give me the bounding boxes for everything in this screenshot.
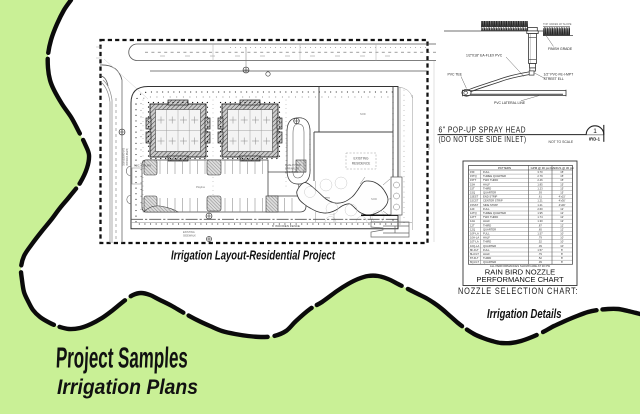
svg-text:12': 12' — [560, 223, 564, 227]
svg-text:IRD-1: IRD-1 — [589, 136, 601, 141]
svg-text:10H-LA: 10H-LA — [470, 236, 479, 240]
svg-text:HALF: HALF — [483, 236, 490, 240]
svg-text:PERFORMANCE CHART: PERFORMANCE CHART — [476, 275, 564, 284]
svg-text:8T-FLT: 8T-FLT — [470, 256, 479, 260]
svg-text:FULL: FULL — [483, 207, 490, 211]
svg-text:12': 12' — [560, 211, 564, 215]
svg-text:1.21: 1.21 — [537, 203, 543, 207]
svg-text:10F-LA: 10F-LA — [470, 232, 479, 236]
svg-text:TWO THIRD: TWO THIRD — [483, 215, 498, 219]
svg-text:QUARTER: QUARTER — [483, 244, 496, 248]
svg-text:.93: .93 — [538, 191, 542, 195]
svg-text:12': 12' — [560, 227, 564, 231]
svg-text:QUARTER: QUARTER — [483, 227, 496, 231]
svg-text:15F: 15F — [470, 170, 475, 174]
svg-text:10T-LA: 10T-LA — [470, 240, 479, 244]
svg-text:1.95: 1.95 — [537, 211, 543, 215]
svg-text:15CST: 15CST — [470, 199, 479, 203]
svg-text:2.60: 2.60 — [537, 207, 543, 211]
svg-text:200 (60' WIDE RIGHT-OF-WAY RD: 200 (60' WIDE RIGHT-OF-WAY RD — [122, 148, 126, 166]
svg-text:QUARTER: QUARTER — [483, 191, 496, 195]
svg-text:END STRIP: END STRIP — [483, 195, 498, 199]
svg-text:10': 10' — [560, 236, 564, 240]
svg-text:FINISH GRADE: FINISH GRADE — [548, 47, 573, 51]
svg-text:1.57: 1.57 — [537, 248, 543, 252]
svg-text:10Q-LA: 10Q-LA — [470, 244, 479, 248]
svg-text:TWO THIRD: TWO THIRD — [483, 178, 498, 182]
svg-text:6' WOODEN FENCE: 6' WOODEN FENCE — [272, 224, 300, 228]
svg-text:EXISTING: EXISTING — [354, 157, 369, 161]
svg-text:15': 15' — [560, 178, 564, 182]
svg-text:SIDE STRIP: SIDE STRIP — [483, 203, 498, 207]
svg-text:(DO NOT USE SIDE INLET): (DO NOT USE SIDE INLET) — [439, 135, 527, 144]
svg-text:RADIUS @ 30 psi: RADIUS @ 30 psi — [550, 166, 574, 170]
svg-text:10': 10' — [560, 244, 564, 248]
svg-text:HALF: HALF — [483, 182, 490, 186]
svg-text:Irrigation Plans: Irrigation Plans — [57, 376, 198, 399]
svg-text:15TQ: 15TQ — [470, 174, 477, 178]
svg-text:THREE QUARTER: THREE QUARTER — [483, 174, 506, 178]
svg-text:GPM @ 30 psi: GPM @ 30 psi — [531, 166, 550, 170]
svg-text:2.46: 2.46 — [537, 178, 543, 182]
svg-text:SOD: SOD — [427, 144, 431, 150]
svg-text:12T: 12T — [470, 223, 475, 227]
svg-text:15': 15' — [560, 186, 564, 190]
svg-text:15Q: 15Q — [470, 191, 475, 195]
svg-text:CENTER STRIP: CENTER STRIP — [483, 199, 503, 203]
svg-text:4'x30': 4'x30' — [559, 199, 566, 203]
svg-text:Project Samples: Project Samples — [55, 342, 188, 374]
svg-text:2.79: 2.79 — [537, 174, 543, 178]
svg-text:PVC TEE: PVC TEE — [448, 73, 463, 77]
svg-text:15': 15' — [560, 170, 564, 174]
svg-text:10': 10' — [560, 240, 564, 244]
svg-text:.52: .52 — [538, 256, 542, 260]
svg-text:NOT TO SCALE: NOT TO SCALE — [549, 140, 574, 144]
svg-text:4'x30': 4'x30' — [559, 203, 566, 207]
svg-text:6" POP-UP SPRAY HEAD: 6" POP-UP SPRAY HEAD — [439, 126, 527, 135]
svg-text:RESIDENCE: RESIDENCE — [352, 162, 371, 166]
svg-text:15T: 15T — [470, 186, 475, 190]
svg-text:8F-FLT: 8F-FLT — [470, 248, 479, 252]
svg-text:1.85: 1.85 — [537, 182, 543, 186]
svg-text:12TQ: 12TQ — [470, 211, 477, 215]
svg-text:THREE QUARTER: THREE QUARTER — [483, 211, 506, 215]
svg-text:.79: .79 — [538, 236, 542, 240]
svg-text:HALF: HALF — [483, 219, 490, 223]
svg-text:SIDEWALK: SIDEWALK — [183, 235, 196, 238]
svg-text:.65: .65 — [538, 227, 542, 231]
svg-text:FULL: FULL — [483, 232, 490, 236]
svg-text:THIRD: THIRD — [483, 186, 491, 190]
svg-text:12Q: 12Q — [470, 227, 475, 231]
svg-text:FULL: FULL — [483, 170, 490, 174]
svg-text:10': 10' — [560, 232, 564, 236]
svg-text:THIRD: THIRD — [483, 256, 491, 260]
svg-text:1: 1 — [593, 128, 597, 135]
svg-text:STREET ELL: STREET ELL — [544, 77, 564, 81]
svg-text:12': 12' — [560, 219, 564, 223]
svg-text:15TT: 15TT — [470, 178, 477, 182]
svg-text:Irrigation Details: Irrigation Details — [487, 306, 562, 321]
svg-text:PATTERN: PATTERN — [498, 166, 511, 170]
svg-text:8Q-FLT: 8Q-FLT — [470, 260, 479, 264]
svg-text:12': 12' — [560, 207, 564, 211]
svg-text:Playline: Playline — [196, 185, 206, 189]
svg-text:TOP VARIES W/ SLOPE: TOP VARIES W/ SLOPE — [543, 22, 572, 26]
svg-text:4'x15': 4'x15' — [559, 195, 566, 199]
svg-text:POC AUBURN: POC AUBURN — [134, 164, 151, 168]
svg-text:15': 15' — [560, 182, 564, 186]
svg-text:HALF: HALF — [483, 252, 490, 256]
svg-text:15SST: 15SST — [470, 203, 479, 207]
svg-text:12H: 12H — [470, 219, 475, 223]
svg-text:1.23: 1.23 — [537, 186, 543, 190]
svg-text:3.70: 3.70 — [537, 170, 543, 174]
svg-text:.52: .52 — [538, 240, 542, 244]
svg-text:.61: .61 — [538, 195, 542, 199]
svg-text:FULL: FULL — [483, 248, 490, 252]
svg-text:PLAT BOOK A, PAGE 58): PLAT BOOK A, PAGE 58) — [125, 148, 129, 165]
svg-text:15': 15' — [560, 174, 564, 178]
svg-text:1.74: 1.74 — [537, 215, 543, 219]
svg-text:.87: .87 — [538, 223, 542, 227]
svg-text:15': 15' — [560, 191, 564, 195]
svg-text:15H: 15H — [470, 182, 475, 186]
svg-text:Irrigation Layout-Residential: Irrigation Layout-Residential Project — [171, 248, 335, 263]
svg-text:1/2"X18" EA-FLEX PVC: 1/2"X18" EA-FLEX PVC — [466, 54, 503, 58]
svg-text:PVC LATERAL LINE: PVC LATERAL LINE — [494, 101, 526, 105]
svg-text:.39: .39 — [538, 244, 542, 248]
svg-text:1.30: 1.30 — [537, 219, 543, 223]
svg-text:SOD: SOD — [371, 197, 377, 201]
svg-text:LOCATION: LOCATION — [285, 171, 298, 174]
svg-text:8H-FLT: 8H-FLT — [470, 252, 479, 256]
svg-text:SOD: SOD — [360, 112, 366, 116]
svg-text:.79: .79 — [538, 252, 542, 256]
svg-text:12F: 12F — [470, 207, 475, 211]
svg-text:12': 12' — [560, 215, 564, 219]
svg-text:THIRD: THIRD — [483, 223, 491, 227]
svg-text:NOZZLE SELECTION CHART:: NOZZLE SELECTION CHART: — [458, 286, 579, 296]
svg-text:15EST: 15EST — [470, 195, 479, 199]
svg-text:THIRD: THIRD — [483, 240, 491, 244]
svg-text:1.57: 1.57 — [537, 232, 543, 236]
svg-text:12TT: 12TT — [470, 215, 477, 219]
svg-text:1.21: 1.21 — [537, 199, 543, 203]
